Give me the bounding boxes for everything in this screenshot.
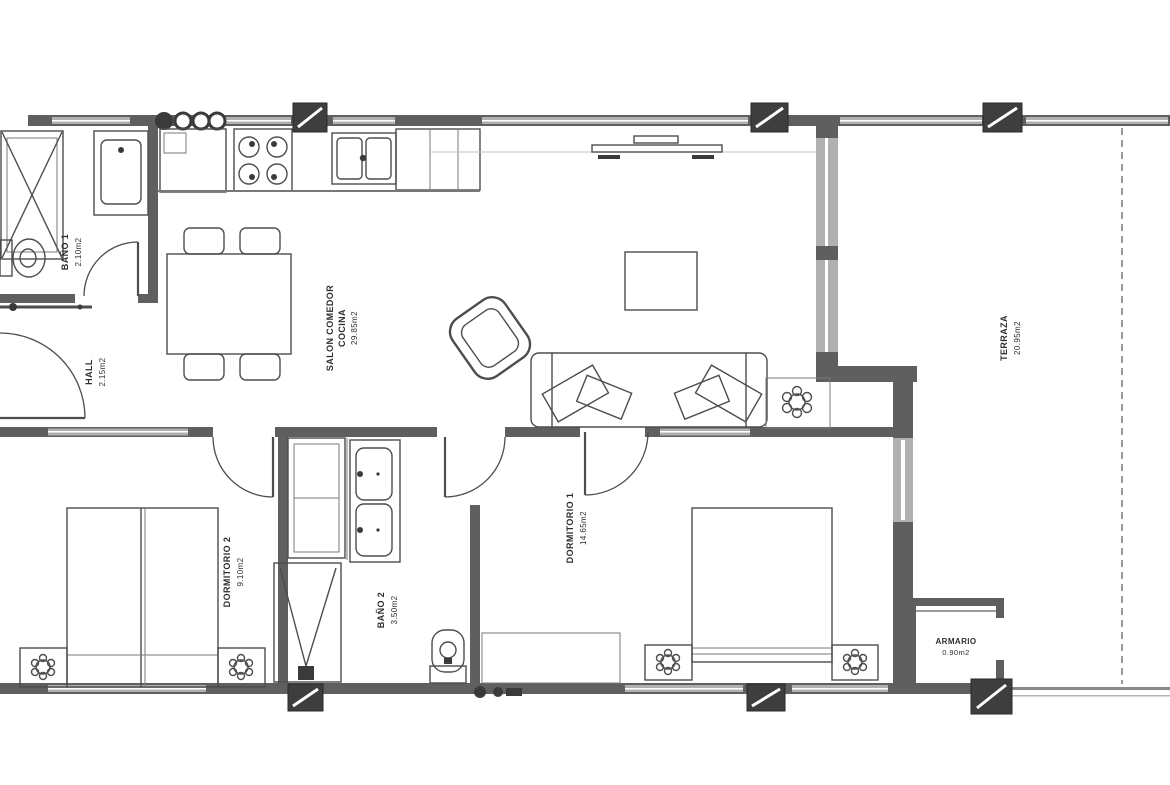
dining-table <box>167 228 291 380</box>
chair <box>184 228 224 254</box>
armchair <box>444 291 537 385</box>
wardrobe <box>288 438 347 560</box>
room-area-label: 2.15m2 <box>98 357 107 386</box>
room-area-label: 2.10m2 <box>74 237 83 266</box>
twin-beds <box>67 508 218 687</box>
bath2-door <box>445 437 505 497</box>
room-name-label: HALL <box>84 359 94 385</box>
stove-burners <box>234 129 292 191</box>
double-bed <box>692 508 832 662</box>
nightstand <box>832 645 878 680</box>
room-name-label: DORMITORIO 1 <box>565 493 575 564</box>
column-pillar <box>971 679 1012 714</box>
column-pillar <box>983 103 1022 132</box>
radiator <box>0 303 92 311</box>
room-bath2: BAÑO 2 3.50m2 <box>274 438 466 683</box>
room-area-label: 0.90m2 <box>942 648 969 657</box>
counter <box>158 129 816 191</box>
double-washbasin <box>350 440 400 562</box>
hood-vent <box>155 112 225 130</box>
room-area-label: 29.85m2 <box>350 311 359 345</box>
room-living-kitchen: SALON COMEDOR COCINA 29.85m2 <box>155 112 830 428</box>
entrance-door <box>0 333 85 418</box>
room-terrace: TERRAZA 20.95m2 <box>999 128 1122 684</box>
column-pillar <box>293 103 327 132</box>
bedroom1-door <box>585 432 648 495</box>
room-name-label: BAÑO 1 <box>60 234 70 270</box>
sofa <box>531 353 767 427</box>
bath1-door <box>84 242 138 296</box>
fridge <box>160 129 226 192</box>
kitchen-sink <box>332 133 396 184</box>
room-name-label: SALON COMEDOR <box>325 285 335 371</box>
chair <box>240 354 280 380</box>
floor-plan-page: BAÑO 1 2.10m2 HALL 2.15m2 <box>0 0 1170 785</box>
room-area-label: 14.65m2 <box>579 511 588 545</box>
coffee-table <box>625 252 697 310</box>
floor-plan-drawing: BAÑO 1 2.10m2 HALL 2.15m2 <box>0 0 1170 785</box>
column-pillar <box>288 684 323 711</box>
chair <box>240 228 280 254</box>
washbasin <box>94 131 148 215</box>
nightstand <box>645 645 692 680</box>
side-table-plant <box>766 378 830 428</box>
nightstand <box>218 648 265 687</box>
bedroom2-door <box>213 437 273 497</box>
nightstand <box>20 648 67 687</box>
room-name-label: ARMARIO <box>935 637 976 646</box>
tv <box>592 136 722 159</box>
room-bedroom1: DORMITORIO 1 14.65m2 <box>474 493 878 698</box>
room-name-label2: COCINA <box>337 309 347 347</box>
room-area-label: 9.10m2 <box>236 557 245 586</box>
toilet <box>430 630 466 683</box>
room-bedroom2: DORMITORIO 2 9.10m2 <box>20 508 265 687</box>
room-closet: ARMARIO 0.90m2 <box>935 637 976 657</box>
room-hall: HALL 2.15m2 <box>84 357 107 386</box>
room-area-label: 20.95m2 <box>1013 321 1022 355</box>
room-name-label: TERRAZA <box>999 315 1009 361</box>
room-bath1: BAÑO 1 2.10m2 <box>0 131 148 311</box>
column-pillar <box>751 103 788 132</box>
room-area-label: 3.50m2 <box>390 595 399 624</box>
room-name-label: DORMITORIO 2 <box>222 537 232 608</box>
column-pillar <box>747 684 785 711</box>
dresser <box>482 633 620 683</box>
chair <box>184 354 224 380</box>
room-name-label: BAÑO 2 <box>376 592 386 628</box>
